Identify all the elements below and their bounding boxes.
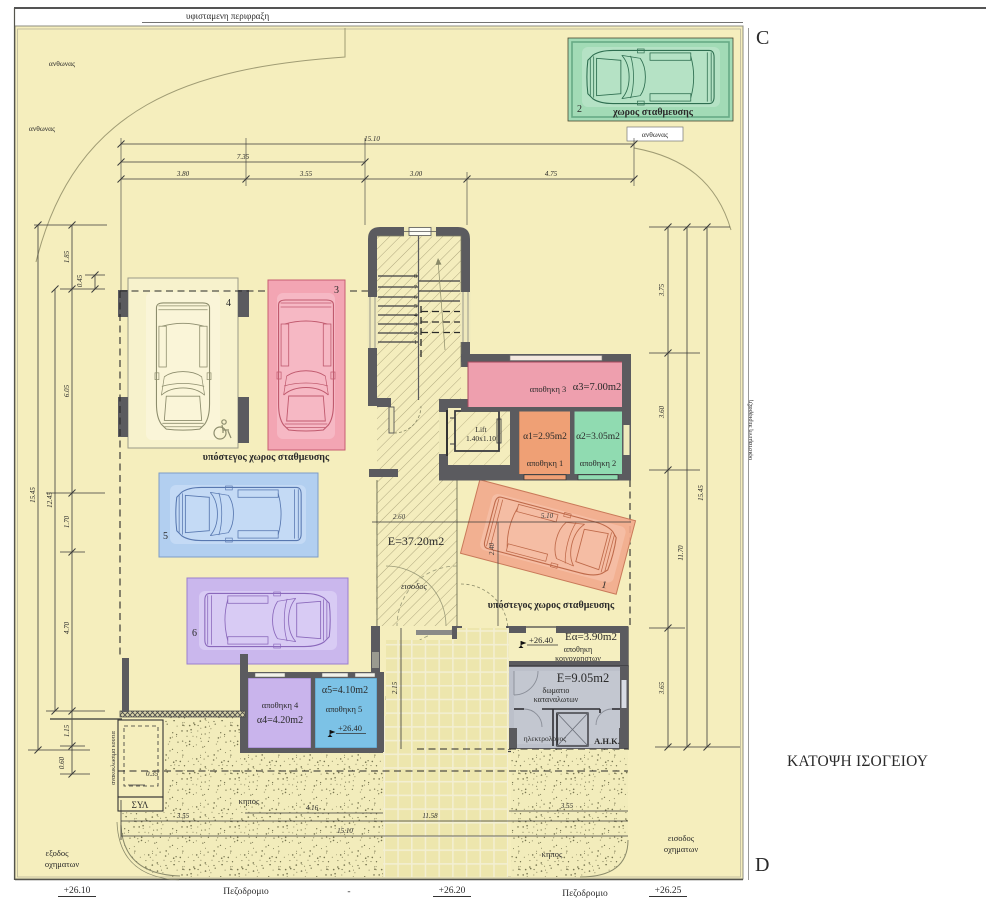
svg-text:αποθηκη 2: αποθηκη 2 bbox=[580, 458, 617, 468]
svg-text:Πεζοδρομιο: Πεζοδρομιο bbox=[562, 888, 608, 899]
svg-text:3.75: 3.75 bbox=[658, 283, 666, 297]
svg-text:+26.10: +26.10 bbox=[64, 886, 91, 896]
svg-text:15.10: 15.10 bbox=[337, 827, 353, 835]
svg-text:15.45: 15.45 bbox=[697, 485, 705, 501]
svg-text:υφισταμενη περιφραξη: υφισταμενη περιφραξη bbox=[747, 399, 754, 460]
svg-text:3.55: 3.55 bbox=[299, 170, 313, 178]
svg-text:C: C bbox=[756, 27, 769, 49]
svg-text:3.00: 3.00 bbox=[409, 170, 423, 178]
svg-text:A.H.K.: A.H.K. bbox=[594, 736, 620, 746]
svg-text:1.15: 1.15 bbox=[63, 724, 71, 737]
svg-text:3.65: 3.65 bbox=[658, 681, 666, 695]
svg-text:αποθηκη 5: αποθηκη 5 bbox=[326, 704, 363, 714]
svg-text:4.70: 4.70 bbox=[63, 621, 71, 634]
svg-text:6: 6 bbox=[414, 295, 417, 301]
svg-text:χωρος σταθμευσης: χωρος σταθμευσης bbox=[612, 107, 694, 118]
svg-text:2.40: 2.40 bbox=[488, 542, 496, 555]
svg-text:ανακυκλωσιμα κουτια: ανακυκλωσιμα κουτια bbox=[111, 730, 117, 784]
svg-text:υφισταμενη περιφραξη: υφισταμενη περιφραξη bbox=[186, 11, 270, 21]
svg-text:εισοδος: εισοδος bbox=[401, 581, 427, 591]
svg-text:Πεζοδρομιο: Πεζοδρομιο bbox=[223, 886, 269, 897]
svg-text:3.55: 3.55 bbox=[560, 802, 574, 810]
svg-text:3.60: 3.60 bbox=[658, 405, 666, 419]
svg-text:αποθηκη 3: αποθηκη 3 bbox=[530, 384, 567, 394]
svg-text:E=9.05m2: E=9.05m2 bbox=[557, 671, 610, 685]
svg-text:3: 3 bbox=[414, 322, 417, 328]
svg-text:1.70: 1.70 bbox=[63, 515, 71, 528]
svg-text:+26.25: +26.25 bbox=[655, 886, 682, 896]
svg-text:α5=4.10m2: α5=4.10m2 bbox=[322, 685, 368, 696]
svg-text:2.15: 2.15 bbox=[391, 681, 399, 694]
svg-text:0.35: 0.35 bbox=[146, 770, 159, 778]
svg-text:7.35: 7.35 bbox=[237, 153, 250, 161]
svg-text:1.85: 1.85 bbox=[63, 250, 71, 263]
svg-text:κηπος: κηπος bbox=[542, 849, 563, 859]
svg-text:5: 5 bbox=[414, 304, 417, 310]
svg-text:α4=4.20m2: α4=4.20m2 bbox=[257, 715, 303, 726]
svg-text:15.45: 15.45 bbox=[29, 487, 37, 503]
svg-text:κηπος: κηπος bbox=[239, 796, 260, 806]
svg-text:αποθηκη 1: αποθηκη 1 bbox=[527, 458, 564, 468]
svg-text:α3=7.00m2: α3=7.00m2 bbox=[573, 382, 621, 393]
svg-text:7: 7 bbox=[414, 285, 417, 291]
svg-text:+26.40: +26.40 bbox=[338, 723, 362, 733]
svg-text:α2=3.05m2: α2=3.05m2 bbox=[576, 432, 620, 442]
svg-text:αποθηκη 4: αποθηκη 4 bbox=[262, 700, 299, 710]
svg-text:-: - bbox=[347, 887, 350, 897]
svg-text:5.10: 5.10 bbox=[541, 512, 554, 520]
svg-text:ΚΑΤΟΨΗ ΙΣΟΓΕΙΟΥ: ΚΑΤΟΨΗ ΙΣΟΓΕΙΟΥ bbox=[787, 753, 928, 770]
svg-text:15.10: 15.10 bbox=[364, 135, 380, 143]
svg-text:ανθωνας: ανθωνας bbox=[49, 59, 75, 68]
svg-text:+26.20: +26.20 bbox=[439, 886, 466, 896]
svg-text:+26.40: +26.40 bbox=[529, 635, 553, 645]
svg-text:11.70: 11.70 bbox=[677, 545, 685, 561]
svg-text:ηλεκτρολογος: ηλεκτρολογος bbox=[524, 734, 566, 743]
svg-text:3.80: 3.80 bbox=[176, 170, 190, 178]
svg-text:υπόστεγος χωρος σταθμευσης: υπόστεγος χωρος σταθμευσης bbox=[203, 452, 330, 463]
svg-text:6: 6 bbox=[192, 628, 197, 639]
svg-text:οχηματων: οχηματων bbox=[45, 859, 79, 869]
svg-text:D: D bbox=[755, 854, 769, 876]
svg-text:ανθωνας: ανθωνας bbox=[29, 124, 55, 133]
svg-text:1: 1 bbox=[414, 340, 417, 346]
svg-text:3: 3 bbox=[334, 285, 339, 296]
svg-text:εξοδος: εξοδος bbox=[46, 848, 70, 858]
svg-text:Eα=3.90m2: Eα=3.90m2 bbox=[565, 631, 617, 643]
svg-text:6.05: 6.05 bbox=[63, 384, 71, 397]
svg-text:5: 5 bbox=[163, 531, 168, 542]
svg-text:0.60: 0.60 bbox=[58, 756, 66, 769]
svg-text:4.75: 4.75 bbox=[545, 170, 558, 178]
svg-text:4.16: 4.16 bbox=[306, 804, 319, 812]
svg-text:E=37.20m2: E=37.20m2 bbox=[388, 534, 444, 548]
svg-text:2.60: 2.60 bbox=[393, 513, 406, 521]
svg-text:1.40x1.10: 1.40x1.10 bbox=[466, 434, 496, 443]
svg-text:ανθωνας: ανθωνας bbox=[642, 130, 668, 139]
svg-text:δωματιο: δωματιο bbox=[543, 686, 570, 695]
svg-text:11.58: 11.58 bbox=[422, 812, 438, 820]
svg-text:υπόστεγος χωρος σταθμευσης: υπόστεγος χωρος σταθμευσης bbox=[488, 600, 615, 611]
svg-text:ΣΥΛ: ΣΥΛ bbox=[132, 800, 149, 810]
svg-text:2: 2 bbox=[414, 331, 417, 337]
svg-text:12.45: 12.45 bbox=[46, 492, 54, 508]
svg-text:αποθηκη: αποθηκη bbox=[564, 645, 592, 654]
svg-text:εισοδος: εισοδος bbox=[668, 833, 695, 843]
svg-text:καταναλωτων: καταναλωτων bbox=[534, 695, 579, 704]
svg-text:α1=2.95m2: α1=2.95m2 bbox=[523, 432, 567, 442]
svg-text:2: 2 bbox=[577, 104, 582, 115]
svg-text:8: 8 bbox=[414, 274, 417, 280]
svg-text:οχηματων: οχηματων bbox=[664, 844, 698, 854]
svg-text:3.55: 3.55 bbox=[176, 812, 190, 820]
svg-text:0.45: 0.45 bbox=[76, 274, 84, 287]
svg-text:Lift: Lift bbox=[475, 425, 487, 434]
svg-text:4: 4 bbox=[226, 298, 231, 309]
svg-text:4: 4 bbox=[414, 313, 417, 319]
